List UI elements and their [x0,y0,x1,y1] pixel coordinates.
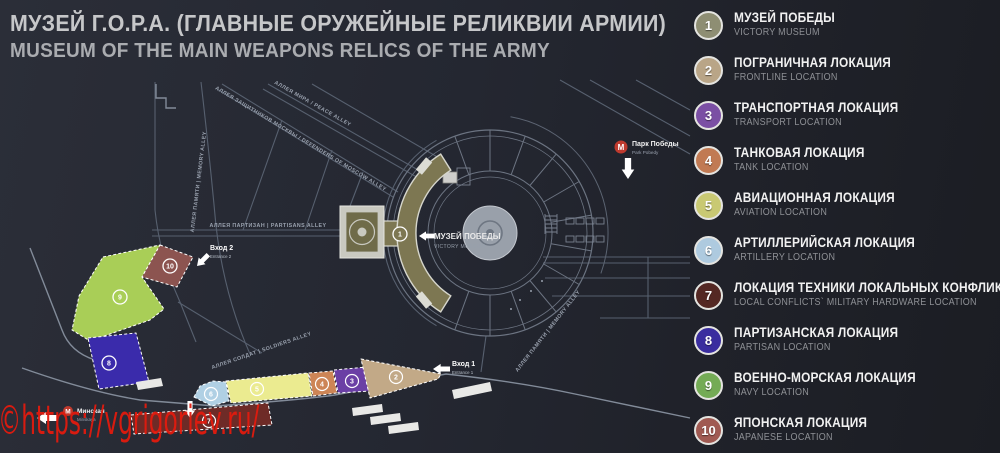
legend-item-10: 10 ЯПОНСКАЯ ЛОКАЦИЯ JAPANESE LOCATION [694,415,996,444]
legend-badge-7: 7 [694,281,723,310]
legend-item-3: 3 ТРАНСПОРТНАЯ ЛОКАЦИЯ TRANSPORT LOCATIO… [694,100,996,129]
entrance-2-label: Вход 2 Entrance 2 [194,245,234,269]
svg-text:VICTORY MUSEUM: VICTORY MUSEUM [434,244,485,250]
svg-text:2: 2 [394,375,398,382]
street-label-peace-alley: АЛЛЕЯ МИРА / PEACE ALLEY [273,80,352,128]
svg-text:Вход 1: Вход 1 [452,361,475,368]
legend-title-ru: ЛОКАЦИЯ ТЕХНИКИ ЛОКАЛЬНЫХ КОНФЛИКТОВ [734,280,965,295]
legend-title-ru: ПОГРАНИЧНАЯ ЛОКАЦИЯ [734,55,891,70]
svg-text:9: 9 [118,295,122,302]
museum-annex [340,206,384,258]
svg-text:Entrance 1: Entrance 1 [452,370,474,375]
legend: 1 МУЗЕЙ ПОБЕДЫ VICTORY MUSEUM 2 ПОГРАНИЧ… [694,10,996,453]
legend-title-ru: ЯПОНСКАЯ ЛОКАЦИЯ [734,415,867,430]
street-label-soldiers-alley: АЛЛЕЯ СОЛДАТ | SOLDIERS ALLEY [211,331,313,371]
metro-down-arrow-icon [622,158,635,179]
svg-text:Park Pobedy: Park Pobedy [632,150,659,155]
legend-title-ru: ТРАНСПОРТНАЯ ЛОКАЦИЯ [734,100,898,115]
street-label-partisans-alley: АЛЛЕЯ ПАРТИЗАН | PARTISANS ALLEY [210,223,327,229]
legend-badge-4: 4 [694,146,723,175]
legend-title-en: LOCAL CONFLICTS` MILITARY HARDWARE LOCAT… [734,297,970,308]
page-title: МУЗЕЙ Г.О.Р.А. (ГЛАВНЫЕ ОРУЖЕЙНЫЕ РЕЛИКВ… [10,10,715,63]
legend-title-ru: ПАРТИЗАНСКАЯ ЛОКАЦИЯ [734,325,898,340]
street-label-memory-alley-west: АЛЛЕЯ ПАМЯТИ | MEMORY ALLEY [190,131,208,233]
svg-text:5: 5 [255,387,259,394]
legend-title-ru: АРТИЛЛЕРИЙСКАЯ ЛОКАЦИЯ [734,235,915,250]
legend-title-en: VICTORY MUSEUM [734,27,837,38]
museum-map-sign: 1 2 3 4 5 6 7 8 9 10 АЛЛЕЯ МИРА / PEACE … [0,0,1000,453]
legend-badge-9: 9 [694,371,723,400]
legend-title-en: FRONTLINE LOCATION [734,72,895,83]
legend-item-1: 1 МУЗЕЙ ПОБЕДЫ VICTORY MUSEUM [694,10,996,39]
legend-item-5: 5 АВИАЦИОННАЯ ЛОКАЦИЯ AVIATION LOCATION [694,190,996,219]
legend-item-9: 9 ВОЕННО-МОРСКАЯ ЛОКАЦИЯ NAVY LOCATION [694,370,996,399]
plaza-dots [510,280,543,310]
svg-text:1: 1 [398,232,402,239]
legend-title-en: JAPANESE LOCATION [734,432,870,443]
entrance-2-arrow-icon [194,251,212,269]
svg-text:Вход 2: Вход 2 [210,245,233,252]
museum-arrow-icon [419,231,435,240]
svg-text:Парк Победы: Парк Победы [632,140,679,148]
legend-badge-5: 5 [694,191,723,220]
legend-title-en: NAVY LOCATION [734,387,920,398]
legend-item-6: 6 АРТИЛЛЕРИЙСКАЯ ЛОКАЦИЯ ARTILLERY LOCAT… [694,235,996,264]
legend-badge-3: 3 [694,101,723,130]
legend-title-ru: МУЗЕЙ ПОБЕДЫ [734,10,835,25]
legend-title-en: AVIATION LOCATION [734,207,898,218]
legend-title-en: TANK LOCATION [734,162,868,173]
legend-title-ru: АВИАЦИОННАЯ ЛОКАЦИЯ [734,190,895,205]
legend-item-4: 4 ТАНКОВАЯ ЛОКАЦИЯ TANK LOCATION [694,145,996,174]
legend-item-2: 2 ПОГРАНИЧНАЯ ЛОКАЦИЯ FRONTLINE LOCATION [694,55,996,84]
legend-badge-1: 1 [694,11,723,40]
legend-badge-2: 2 [694,56,723,85]
metro-park-pobedy: М Парк Победы Park Pobedy [615,140,679,179]
svg-text:4: 4 [320,382,324,389]
svg-text:10: 10 [166,264,174,271]
page-title-ru: МУЗЕЙ Г.О.Р.А. (ГЛАВНЫЕ ОРУЖЕЙНЫЕ РЕЛИКВ… [10,10,666,37]
legend-title-en: TRANSPORT LOCATION [734,117,902,128]
legend-item-7: 7 ЛОКАЦИЯ ТЕХНИКИ ЛОКАЛЬНЫХ КОНФЛИКТОВ L… [694,280,996,309]
legend-title-ru: ТАНКОВАЯ ЛОКАЦИЯ [734,145,865,160]
zone-8 [88,333,149,389]
svg-text:М: М [618,143,625,152]
entrance-1-label: Вход 1 Entrance 1 [433,361,475,375]
legend-title-en: ARTILLERY LOCATION [734,252,919,263]
svg-text:МУЗЕЙ ПОБЕДЫ: МУЗЕЙ ПОБЕДЫ [434,232,501,241]
legend-item-8: 8 ПАРТИЗАНСКАЯ ЛОКАЦИЯ PARTISAN LOCATION [694,325,996,354]
legend-badge-10: 10 [694,416,723,445]
legend-title-en: PARTISAN LOCATION [734,342,902,353]
watermark: ©https://vgrigoriev.ru/ [0,398,259,444]
legend-badge-6: 6 [694,236,723,265]
svg-text:Entrance 2: Entrance 2 [210,254,232,259]
legend-title-ru: ВОЕННО-МОРСКАЯ ЛОКАЦИЯ [734,370,916,385]
page-title-en: MUSEUM OF THE MAIN WEAPONS RELICS OF THE… [10,40,680,63]
street-label-defenders-alley: АЛЛЕЯ ЗАЩИТНИКОВ МОСКВЫ / DEFENDERS OF M… [214,85,387,192]
legend-badge-8: 8 [694,326,723,355]
svg-text:3: 3 [350,379,354,386]
svg-text:8: 8 [107,361,111,368]
